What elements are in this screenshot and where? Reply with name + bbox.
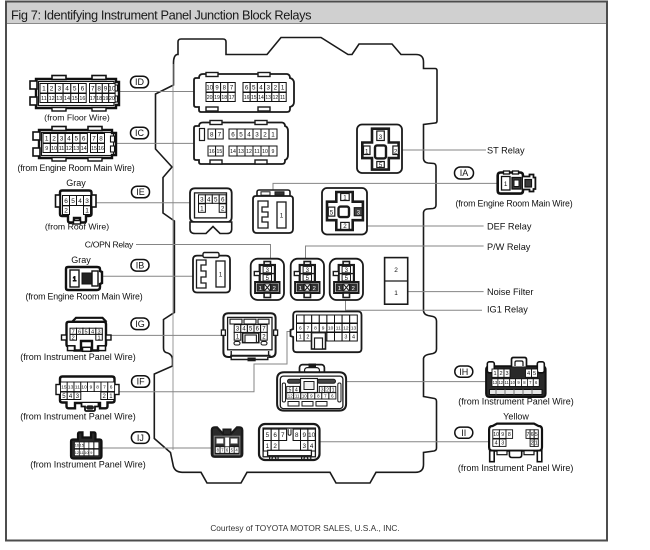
svg-text:13: 13 bbox=[493, 380, 498, 385]
svg-text:14: 14 bbox=[258, 95, 264, 101]
svg-text:1: 1 bbox=[281, 85, 285, 92]
svg-text:13: 13 bbox=[68, 385, 74, 391]
svg-text:11: 11 bbox=[59, 146, 65, 152]
svg-text:10: 10 bbox=[108, 86, 116, 93]
svg-text:20: 20 bbox=[207, 95, 213, 101]
svg-text:IB: IB bbox=[136, 261, 145, 271]
svg-text:19: 19 bbox=[214, 95, 220, 101]
svg-text:2: 2 bbox=[221, 205, 225, 212]
svg-text:15: 15 bbox=[61, 385, 67, 391]
svg-text:5: 5 bbox=[73, 86, 77, 93]
svg-text:IF: IF bbox=[137, 377, 146, 387]
svg-text:13: 13 bbox=[73, 146, 79, 152]
svg-text:Gray: Gray bbox=[71, 255, 91, 265]
svg-text:16: 16 bbox=[209, 149, 215, 155]
svg-text:(from Engine Room Main Wire): (from Engine Room Main Wire) bbox=[17, 163, 134, 173]
svg-text:3: 3 bbox=[255, 131, 259, 138]
svg-text:14: 14 bbox=[81, 146, 87, 152]
svg-text:1: 1 bbox=[365, 149, 369, 156]
svg-text:9: 9 bbox=[90, 451, 92, 455]
svg-text:(from Instrument Panel Wire): (from Instrument Panel Wire) bbox=[20, 352, 136, 362]
svg-text:10: 10 bbox=[510, 380, 515, 385]
svg-text:2: 2 bbox=[352, 286, 355, 292]
svg-text:Noise Filter: Noise Filter bbox=[487, 287, 533, 297]
svg-text:(from Instrument Panel Wire): (from Instrument Panel Wire) bbox=[30, 460, 146, 470]
svg-text:4: 4 bbox=[352, 335, 355, 341]
svg-text:3: 3 bbox=[379, 134, 383, 141]
svg-text:7: 7 bbox=[218, 131, 222, 138]
svg-text:12: 12 bbox=[288, 393, 293, 398]
svg-text:8: 8 bbox=[314, 326, 317, 332]
svg-text:1: 1 bbox=[394, 290, 398, 297]
svg-text:5: 5 bbox=[535, 432, 538, 438]
svg-text:1: 1 bbox=[338, 286, 341, 292]
svg-text:ID: ID bbox=[135, 77, 145, 87]
svg-text:4: 4 bbox=[78, 198, 82, 205]
svg-text:DEF Relay: DEF Relay bbox=[487, 222, 532, 232]
svg-text:9: 9 bbox=[302, 432, 306, 439]
svg-text:16: 16 bbox=[244, 95, 250, 101]
svg-text:2: 2 bbox=[50, 86, 54, 93]
svg-text:4: 4 bbox=[310, 443, 314, 450]
svg-text:5: 5 bbox=[533, 371, 536, 377]
svg-text:2: 2 bbox=[263, 131, 267, 138]
svg-text:P/W Relay: P/W Relay bbox=[487, 242, 531, 252]
svg-text:10: 10 bbox=[51, 146, 57, 152]
svg-text:2: 2 bbox=[499, 371, 502, 377]
svg-text:11: 11 bbox=[41, 96, 47, 102]
svg-text:6: 6 bbox=[81, 86, 85, 93]
svg-text:7: 7 bbox=[92, 136, 96, 143]
svg-text:10: 10 bbox=[84, 451, 88, 455]
svg-text:12: 12 bbox=[273, 95, 279, 101]
svg-text:6: 6 bbox=[531, 432, 534, 438]
svg-text:8: 8 bbox=[508, 432, 511, 438]
svg-text:5: 5 bbox=[252, 85, 256, 92]
svg-text:ST Relay: ST Relay bbox=[487, 146, 525, 156]
svg-text:9: 9 bbox=[45, 146, 48, 152]
svg-text:3: 3 bbox=[302, 443, 306, 450]
svg-text:5: 5 bbox=[379, 162, 383, 169]
svg-text:1: 1 bbox=[535, 441, 538, 447]
svg-text:6: 6 bbox=[78, 329, 81, 335]
svg-text:3: 3 bbox=[57, 86, 61, 93]
svg-text:4: 4 bbox=[259, 85, 263, 92]
svg-text:8: 8 bbox=[210, 131, 214, 138]
svg-text:1: 1 bbox=[200, 205, 204, 212]
svg-text:2: 2 bbox=[52, 136, 56, 143]
svg-text:16: 16 bbox=[75, 444, 79, 448]
svg-text:15: 15 bbox=[91, 146, 97, 152]
svg-text:20: 20 bbox=[109, 96, 115, 102]
svg-text:3: 3 bbox=[85, 198, 89, 205]
svg-text:3: 3 bbox=[357, 210, 361, 217]
svg-text:11: 11 bbox=[295, 393, 300, 398]
svg-text:15: 15 bbox=[72, 96, 78, 102]
svg-text:10: 10 bbox=[493, 432, 499, 438]
svg-text:1: 1 bbox=[259, 286, 262, 292]
svg-text:16: 16 bbox=[98, 146, 104, 152]
svg-text:3: 3 bbox=[344, 335, 347, 341]
svg-text:6: 6 bbox=[231, 131, 235, 138]
svg-text:1: 1 bbox=[266, 443, 270, 450]
svg-text:13: 13 bbox=[238, 149, 244, 155]
svg-text:1: 1 bbox=[97, 335, 100, 341]
svg-text:12: 12 bbox=[75, 451, 79, 455]
svg-text:Fig 7: Identifying Instrument: Fig 7: Identifying Instrument Panel Junc… bbox=[11, 8, 311, 23]
svg-text:10: 10 bbox=[206, 85, 213, 91]
svg-text:2: 2 bbox=[274, 85, 278, 92]
svg-text:8: 8 bbox=[295, 432, 299, 439]
svg-text:7: 7 bbox=[103, 385, 106, 391]
svg-text:17: 17 bbox=[229, 95, 235, 101]
svg-text:(from Roof Wire): (from Roof Wire) bbox=[45, 222, 109, 232]
svg-text:9: 9 bbox=[90, 385, 93, 391]
svg-text:10: 10 bbox=[328, 326, 334, 332]
svg-text:1: 1 bbox=[299, 286, 302, 292]
svg-text:IG1 Relay: IG1 Relay bbox=[487, 305, 528, 315]
svg-text:1: 1 bbox=[271, 131, 275, 138]
svg-text:10: 10 bbox=[302, 393, 307, 398]
svg-text:1: 1 bbox=[493, 371, 496, 377]
svg-text:1: 1 bbox=[85, 208, 89, 215]
svg-text:15: 15 bbox=[251, 95, 257, 101]
svg-text:14: 14 bbox=[64, 96, 70, 102]
svg-text:3: 3 bbox=[501, 441, 504, 447]
svg-text:1: 1 bbox=[219, 272, 223, 279]
svg-text:(from Engine Room Main Wire): (from Engine Room Main Wire) bbox=[455, 199, 572, 209]
svg-text:IH: IH bbox=[459, 367, 468, 377]
svg-text:1: 1 bbox=[73, 276, 77, 283]
svg-text:2: 2 bbox=[394, 267, 398, 274]
svg-text:12: 12 bbox=[498, 380, 503, 385]
svg-text:11: 11 bbox=[254, 149, 259, 155]
svg-text:14: 14 bbox=[230, 149, 236, 155]
svg-text:10: 10 bbox=[81, 385, 87, 391]
svg-text:IA: IA bbox=[460, 168, 469, 178]
svg-text:11: 11 bbox=[280, 95, 285, 101]
svg-text:5: 5 bbox=[74, 136, 78, 143]
svg-text:5: 5 bbox=[239, 131, 243, 138]
svg-text:13: 13 bbox=[56, 96, 62, 102]
svg-text:4: 4 bbox=[91, 329, 94, 335]
svg-text:1: 1 bbox=[280, 213, 284, 220]
svg-text:Yellow: Yellow bbox=[503, 411, 529, 421]
svg-text:12: 12 bbox=[343, 326, 349, 332]
svg-text:Gray: Gray bbox=[66, 178, 86, 188]
svg-text:4: 4 bbox=[207, 196, 211, 203]
svg-text:6: 6 bbox=[273, 432, 277, 439]
svg-text:9: 9 bbox=[501, 432, 504, 438]
svg-text:2: 2 bbox=[72, 335, 75, 341]
svg-text:(from Floor Wire): (from Floor Wire) bbox=[44, 112, 110, 122]
svg-text:18: 18 bbox=[221, 95, 227, 101]
svg-text:5: 5 bbox=[71, 198, 75, 205]
svg-text:1: 1 bbox=[504, 181, 508, 188]
svg-text:IG: IG bbox=[135, 319, 145, 329]
svg-text:IE: IE bbox=[136, 187, 145, 197]
svg-text:1: 1 bbox=[42, 86, 46, 93]
svg-text:4: 4 bbox=[495, 441, 498, 447]
svg-text:7: 7 bbox=[281, 432, 285, 439]
svg-text:(from Instrument Panel Wire): (from Instrument Panel Wire) bbox=[458, 463, 574, 473]
svg-text:4: 4 bbox=[67, 136, 71, 143]
svg-text:15: 15 bbox=[80, 444, 84, 448]
svg-text:17: 17 bbox=[90, 96, 96, 102]
svg-text:9: 9 bbox=[322, 326, 325, 332]
svg-text:C/OPN Relay: C/OPN Relay bbox=[85, 240, 134, 250]
svg-text:2: 2 bbox=[273, 443, 277, 450]
svg-text:1: 1 bbox=[45, 136, 49, 143]
svg-text:2: 2 bbox=[306, 335, 309, 341]
svg-text:15: 15 bbox=[217, 149, 223, 155]
svg-text:7: 7 bbox=[527, 432, 530, 438]
svg-text:7: 7 bbox=[307, 326, 310, 332]
svg-text:12: 12 bbox=[66, 146, 72, 152]
svg-text:8: 8 bbox=[97, 86, 101, 93]
svg-text:3: 3 bbox=[266, 85, 270, 92]
svg-text:2: 2 bbox=[394, 149, 398, 156]
svg-text:5: 5 bbox=[266, 432, 270, 439]
svg-text:6: 6 bbox=[64, 198, 68, 205]
svg-text:10: 10 bbox=[262, 149, 268, 155]
svg-text:8: 8 bbox=[99, 136, 103, 143]
svg-text:9: 9 bbox=[104, 86, 108, 93]
svg-text:2: 2 bbox=[343, 223, 347, 230]
svg-text:1: 1 bbox=[299, 335, 302, 341]
svg-text:5: 5 bbox=[214, 196, 218, 203]
svg-text:6: 6 bbox=[245, 85, 249, 92]
svg-text:7: 7 bbox=[91, 86, 95, 93]
svg-text:10: 10 bbox=[308, 432, 316, 439]
svg-text:(from Instrument Panel Wire): (from Instrument Panel Wire) bbox=[458, 397, 574, 407]
svg-text:3: 3 bbox=[200, 196, 204, 203]
svg-text:5: 5 bbox=[85, 329, 88, 335]
svg-text:(from Engine Room Main Wire): (from Engine Room Main Wire) bbox=[25, 292, 142, 302]
svg-text:19: 19 bbox=[103, 96, 109, 102]
svg-text:II: II bbox=[461, 428, 466, 438]
svg-text:12: 12 bbox=[49, 96, 55, 102]
svg-text:5: 5 bbox=[330, 209, 334, 216]
svg-text:4: 4 bbox=[65, 86, 69, 93]
svg-text:1: 1 bbox=[343, 195, 347, 202]
svg-text:18: 18 bbox=[96, 96, 102, 102]
svg-text:IC: IC bbox=[135, 128, 145, 138]
svg-text:16: 16 bbox=[79, 96, 85, 102]
svg-text:13: 13 bbox=[265, 95, 271, 101]
svg-text:IJ: IJ bbox=[137, 433, 144, 443]
svg-text:9: 9 bbox=[272, 149, 275, 155]
svg-text:6: 6 bbox=[82, 136, 86, 143]
svg-text:3: 3 bbox=[60, 136, 64, 143]
svg-text:6: 6 bbox=[110, 385, 113, 391]
svg-text:11: 11 bbox=[75, 385, 80, 391]
svg-text:8: 8 bbox=[96, 385, 99, 391]
svg-text:3: 3 bbox=[505, 371, 508, 377]
svg-text:11: 11 bbox=[505, 380, 510, 385]
svg-text:13: 13 bbox=[351, 326, 357, 332]
svg-text:12: 12 bbox=[246, 149, 252, 155]
svg-text:2: 2 bbox=[531, 441, 534, 447]
svg-text:2: 2 bbox=[313, 286, 316, 292]
svg-text:4: 4 bbox=[527, 371, 530, 377]
svg-text:(from Instrument Panel Wire): (from Instrument Panel Wire) bbox=[20, 412, 136, 422]
svg-text:Courtesy of TOYOTA MOTOR SALES: Courtesy of TOYOTA MOTOR SALES, U.S.A., … bbox=[210, 523, 399, 533]
svg-text:11: 11 bbox=[80, 451, 84, 455]
svg-text:11: 11 bbox=[336, 326, 341, 332]
svg-text:2: 2 bbox=[64, 208, 68, 215]
svg-text:6: 6 bbox=[221, 196, 225, 203]
svg-text:2: 2 bbox=[273, 286, 276, 292]
svg-text:4: 4 bbox=[247, 131, 251, 138]
svg-text:6: 6 bbox=[299, 326, 302, 332]
